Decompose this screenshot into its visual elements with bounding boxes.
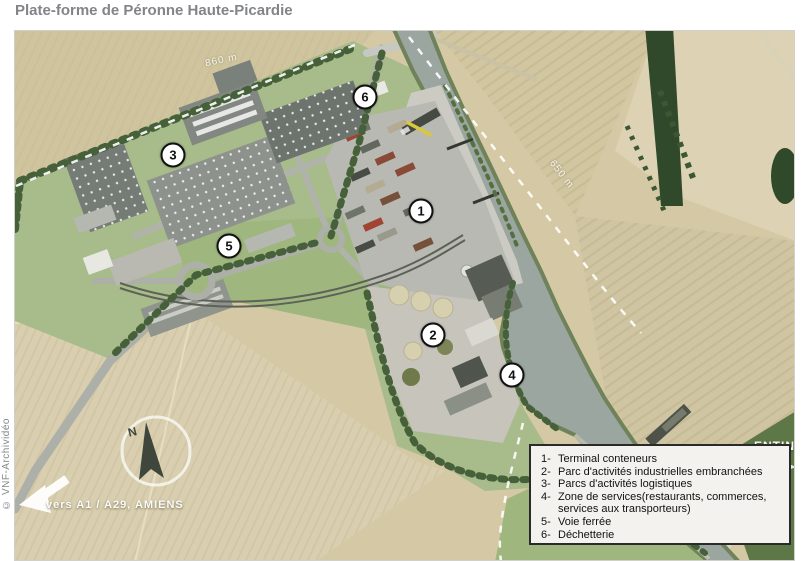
legend-item: 4-Zone de services(restaurants, commerce… — [541, 491, 781, 516]
legend-item: 5-Voie ferrée — [541, 516, 781, 529]
legend-item-number: 2- — [541, 466, 558, 479]
legend-item: 2-Parc d'activités industrielles embranc… — [541, 466, 781, 479]
legend-item-number: 5- — [541, 516, 558, 529]
direction-label-amiens: vers A1 / A29, AMIENS — [46, 499, 184, 511]
legend-item-number: 3- — [541, 478, 558, 491]
aerial-map: 860 m 650 m N vers A1 / A29, AMIENS ENTI… — [14, 30, 795, 561]
map-marker-1: 1 — [409, 199, 434, 224]
legend-item-label: Voie ferrée — [558, 516, 781, 529]
legend-item-number: 4- — [541, 491, 558, 516]
map-overlay: 860 m 650 m N vers A1 / A29, AMIENS ENTI… — [15, 31, 794, 560]
map-marker-2: 2 — [421, 323, 446, 348]
legend-item: 3-Parcs d'activités logistiques — [541, 478, 781, 491]
map-marker-5: 5 — [217, 234, 242, 259]
distance-label-650m: 650 m — [547, 158, 576, 191]
legend-item-label: Parcs d'activités logistiques — [558, 478, 781, 491]
map-marker-6: 6 — [353, 85, 378, 110]
map-marker-4: 4 — [500, 363, 525, 388]
legend-item-label: Zone de services(restaurants, commerces,… — [558, 491, 781, 516]
legend-item: 1-Terminal conteneurs — [541, 453, 781, 466]
legend-item-label: Terminal conteneurs — [558, 453, 781, 466]
legend-item-number: 1- — [541, 453, 558, 466]
page-title: Plate-forme de Péronne Haute-Picardie — [15, 2, 293, 19]
copyright-credit: © VNF-Archividéo — [1, 418, 12, 510]
distance-label-860m: 860 m — [204, 52, 238, 70]
legend-item-number: 6- — [541, 529, 558, 542]
legend-box: 1-Terminal conteneurs 2-Parc d'activités… — [529, 444, 791, 545]
map-marker-3: 3 — [161, 143, 186, 168]
page: Plate-forme de Péronne Haute-Picardie © … — [0, 0, 808, 561]
compass-north-label: N — [126, 424, 138, 440]
legend-item-label: Parc d'activités industrielles embranché… — [558, 466, 781, 479]
legend-item-label: Déchetterie — [558, 529, 781, 542]
legend-item: 6-Déchetterie — [541, 529, 781, 542]
